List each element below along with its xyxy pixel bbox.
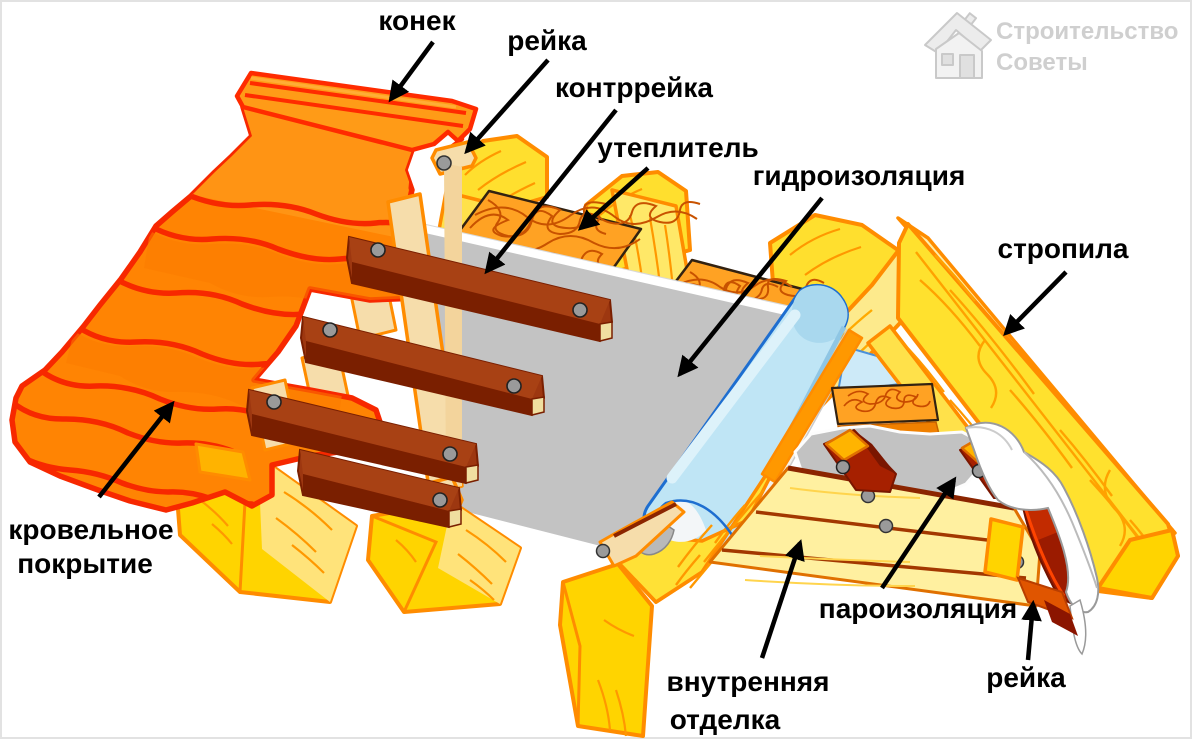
svg-text:отделка: отделка (670, 704, 781, 735)
svg-text:стропила: стропила (998, 233, 1129, 264)
svg-text:гидроизоляция: гидроизоляция (753, 160, 966, 191)
svg-text:кровельное: кровельное (8, 514, 173, 545)
svg-text:контррейка: контррейка (555, 72, 713, 103)
svg-text:пароизоляция: пароизоляция (819, 593, 1017, 624)
svg-text:рейка: рейка (507, 25, 587, 56)
svg-text:покрытие: покрытие (17, 548, 153, 579)
svg-text:Советы: Советы (996, 49, 1088, 76)
svg-text:рейка: рейка (986, 662, 1066, 693)
svg-text:Строительство: Строительство (996, 18, 1178, 45)
svg-text:утеплитель: утеплитель (597, 132, 758, 163)
svg-text:внутренняя: внутренняя (667, 666, 830, 697)
svg-text:конек: конек (378, 5, 456, 36)
